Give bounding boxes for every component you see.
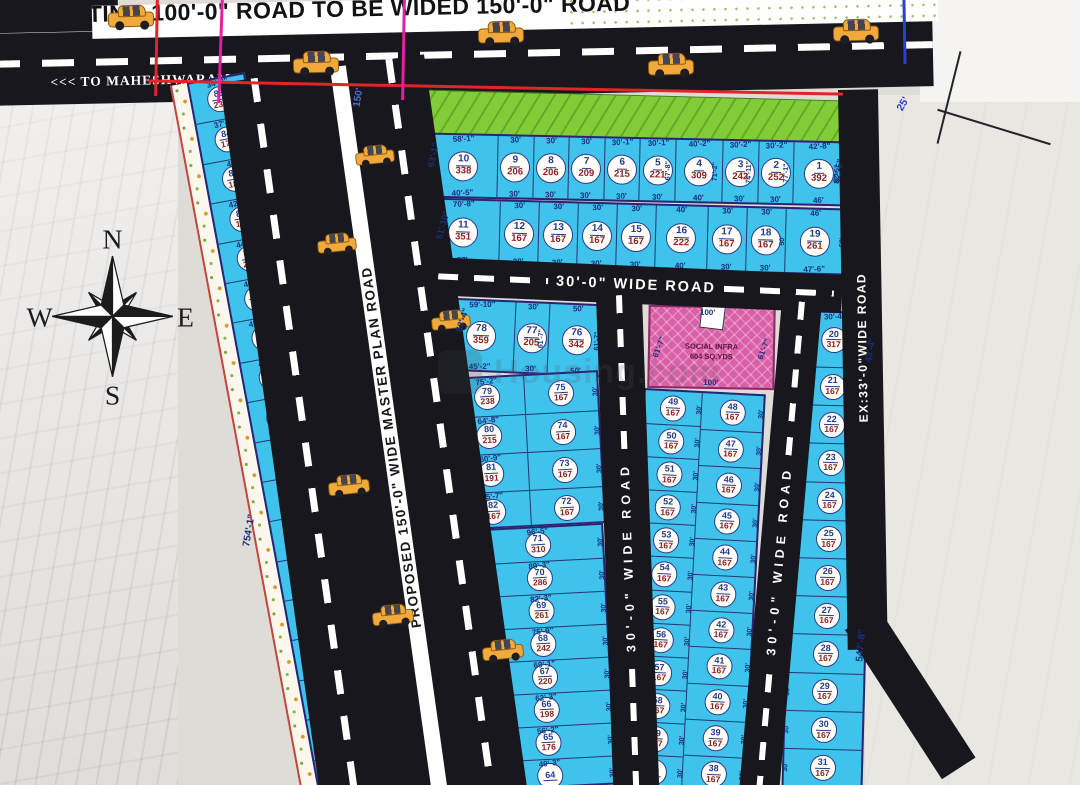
plot-badge: 21167 (819, 373, 846, 400)
plot-area: 167 (818, 654, 832, 664)
plot-area: 167 (664, 442, 679, 452)
plot-cell: 50167 30' (642, 423, 700, 459)
plot-area: 167 (554, 393, 569, 403)
plot-area: 221 (649, 170, 665, 181)
plot-badge: 23167 (817, 450, 844, 477)
cross-road-label: 30'-0" WIDE ROAD (556, 274, 716, 297)
plot-badge: 38167 (700, 761, 727, 785)
plot-badge: 19261 (799, 226, 830, 257)
plot-area: 215 (482, 435, 497, 445)
plot-side-dim: 67'-8" (665, 161, 672, 180)
plot-top-dim: 46' (810, 208, 821, 217)
plot-bottom-dim: 40'-5" (452, 188, 474, 198)
plot-cell: 38167 30' (682, 754, 745, 785)
plot-badge: 27167 (813, 602, 840, 629)
plot-badge: 11351 (448, 217, 479, 248)
plot-number: 64 (543, 770, 558, 781)
plot-area: 167 (820, 578, 834, 588)
plot-badge: 12167 (504, 218, 535, 249)
plot-area: 167 (757, 240, 773, 251)
plot-badge: 51167 (656, 461, 683, 488)
plot-area: 167 (817, 692, 831, 702)
compass-east-label: E (177, 301, 194, 332)
plot-top-dim: 30' (722, 206, 733, 215)
plot-area: 252 (768, 173, 784, 184)
plot-side-dim: 30' (696, 405, 703, 415)
plot-area: 167 (511, 234, 527, 245)
plot-side-dim: 30' (682, 669, 689, 679)
plot-badge: 40167 (704, 689, 731, 716)
plot-badge: 6215 (607, 154, 638, 185)
plot-cell: 44167 30' (693, 538, 756, 577)
plot-cell: 30'-2" 2252 30' 77'-1" (757, 142, 794, 204)
taxi-icon (108, 11, 154, 27)
plot-area: 167 (824, 425, 838, 435)
plot-row-1: 58'-1" 10338 40'-5" 30' 9206 30' 30' 820… (427, 133, 846, 207)
plot-cell: 46167 30' (697, 465, 760, 504)
plot-bottom-dim: 46' (813, 196, 824, 206)
plot-side-dim: 30' (687, 570, 694, 580)
plot-bottom-dim: 30' (651, 192, 662, 202)
plot-area: 392 (811, 173, 827, 184)
taxi-icon (833, 25, 879, 41)
plot-area: 167 (665, 408, 680, 418)
plot-badge: 52167 (654, 494, 681, 521)
plot-top-dim: 30' (510, 135, 521, 145)
plot-cell: 30' 14167 30' (576, 203, 617, 267)
plot-cell: 30' 18167 30' 50' (745, 208, 786, 272)
plot-area: 242 (536, 644, 551, 654)
plot-side-dim: 30' (690, 504, 697, 514)
plot-badge: 1392 (804, 158, 835, 189)
taxi-icon (478, 27, 524, 43)
plot-cell: 40167 30' (686, 682, 749, 721)
plot-cell: 30'-1" 5221 30' 67'-8" (639, 139, 676, 201)
plot-area: 167 (715, 594, 730, 604)
plot-side-dim: 74'-11" (746, 161, 753, 184)
plot-badge: 9206 (500, 152, 531, 183)
plot-bottom-dim: 30' (770, 195, 781, 205)
compass-north-label: N (103, 223, 123, 254)
plot-cell: 30167 30' (785, 710, 863, 750)
plot-cell: 30' 15167 30' (615, 205, 656, 269)
plot-side-dim: 30' (676, 769, 683, 779)
plot-badge: 7209 (571, 153, 602, 184)
plot-badge: 8206 (536, 152, 567, 183)
plot-cell: 47167 30' (699, 429, 762, 468)
plot-area: 167 (706, 775, 721, 785)
plot-top-dim: 30' (553, 202, 564, 211)
plot-badge: 44167 (711, 544, 738, 571)
plot-badge: 45167 (713, 508, 740, 535)
plot-side-dim: 30' (685, 603, 692, 613)
plot-cell: 43167 30' (691, 574, 754, 613)
plot-badge: 14167 (582, 220, 613, 251)
plot-top-dim: 30' (761, 207, 772, 216)
plot-area: 167 (662, 475, 677, 485)
plot-cell: 40'-2" 4309 40' 71'-2" (674, 140, 722, 202)
plot-area: 167 (721, 485, 736, 495)
plot-cell: 30' 9206 30' (496, 136, 533, 198)
plot-cell: 42167 30' (690, 610, 753, 649)
plot-area: 167 (822, 501, 836, 511)
plot-badge: 73167 (551, 456, 578, 483)
plot-area: 215 (614, 169, 630, 180)
plot-cell: 41167 30' (688, 646, 751, 685)
plot-cell: 30'-1" 6215 30' (603, 138, 640, 200)
plot-top-dim: 30' (514, 201, 525, 210)
plot-top-dim: 30' (546, 136, 557, 146)
plot-area: 359 (473, 335, 489, 347)
plot-top-dim: 42'-8" (809, 141, 831, 151)
plot-cell: 30'-2" 3242 30' 74'-11" (721, 141, 758, 203)
plot-area: 167 (821, 539, 835, 549)
plot-badge: 39167 (702, 725, 729, 752)
plot-badge: 24167 (816, 488, 843, 515)
plot-area: 167 (710, 702, 725, 712)
plot-badge: 43167 (709, 580, 736, 607)
plot-side-dim: 30' (752, 518, 759, 528)
plot-area: 338 (455, 166, 471, 177)
watermark-logo-icon (438, 350, 482, 394)
plot-side-dim: 30' (597, 536, 604, 546)
plot-side-dim: 30' (782, 763, 789, 773)
social-top-dim: 100' (700, 308, 715, 317)
plot-badge: 13167 (543, 219, 574, 250)
plot-top-dim: 40'-2" (689, 139, 711, 149)
plot-area: 167 (717, 558, 732, 568)
plot-top-dim: 58'-1" (453, 134, 475, 144)
plot-top-dim: 50' (572, 304, 583, 313)
plot-area: 167 (660, 508, 675, 518)
plot-cell: 72167 30' (530, 486, 604, 528)
compass-rose-icon: N E S W (20, 222, 205, 417)
plot-badge: 46167 (715, 472, 742, 499)
plot-side-dim: 30' (754, 482, 761, 492)
plot-side-dim: 61'-7" (538, 329, 546, 348)
plot-badge: 54167 (651, 560, 678, 587)
plot-area: 167 (589, 236, 605, 247)
plot-area: 167 (708, 738, 723, 748)
plot-area: 176 (541, 743, 556, 753)
plot-cell: 49167 30' (644, 390, 702, 426)
plot-area: 206 (543, 168, 559, 179)
plot-area: 317 (826, 340, 840, 350)
plot-area: 286 (533, 578, 548, 588)
plot-badge: 18167 (750, 225, 781, 256)
plot-cell: 31167 30' (784, 748, 862, 785)
plot-cell: 29167 30' (786, 671, 864, 711)
plot-cell: 51167 30' (641, 456, 699, 492)
plot-area: 167 (718, 239, 734, 250)
plot-side-dim: 30' (678, 736, 685, 746)
plot-cell: 30' 7209 30' (568, 138, 605, 200)
plot-side-dim: 30' (755, 446, 762, 456)
master-road-label: PROPOSED 150'-0" WIDE MASTER PLAN ROAD (330, 65, 453, 785)
plot-top-dim: 30'-1" (612, 137, 634, 147)
plot-badge: 48167 (719, 399, 746, 426)
plot-cell: 48167 30' (701, 393, 764, 432)
plot-bottom-dim: 30' (509, 189, 520, 199)
plot-area: 198 (540, 710, 555, 720)
plot-top-dim: 40' (677, 205, 688, 214)
plot-area: 167 (658, 541, 673, 551)
plot-area: 309 (691, 171, 707, 182)
plot-badge: 50167 (658, 428, 685, 455)
plot-bottom-dim: 30' (616, 191, 627, 201)
plot-badge: 47167 (717, 436, 744, 463)
road-dash (438, 273, 548, 284)
plot-top-dim: 30' (581, 137, 592, 147)
vertical-road-label: 30'-0" WIDE ROAD (617, 452, 638, 663)
plot-area: 167 (655, 607, 670, 617)
watermark-text: Housing.com (494, 353, 720, 392)
plot-badge: 72167 (553, 494, 580, 521)
plot-area: 220 (538, 677, 553, 687)
plot-side-dim: 30' (750, 554, 757, 564)
plot-bottom-dim: 30' (734, 194, 745, 204)
plot-area: 261 (535, 611, 550, 621)
plot-badge: 49167 (659, 394, 686, 421)
plot-side-dim: 30' (683, 636, 690, 646)
background-building-sketch-left (0, 58, 178, 785)
plot-area: 167 (713, 630, 728, 640)
plot-area: 167 (815, 769, 829, 779)
plot-side-dim: 30' (689, 537, 696, 547)
plot-top-dim: 30' (527, 302, 538, 311)
road-center-line (0, 41, 933, 68)
plot-cell: 30' 12167 30' (498, 201, 539, 265)
plot-top-dim: 70'-8" (453, 199, 475, 209)
plot-badge: 41167 (705, 653, 732, 680)
vertical-road-label: 30'-0" WIDE ROAD (763, 455, 795, 666)
plot-badge: 29167 (811, 679, 838, 706)
plot-badge: 53167 (652, 527, 679, 554)
plot-side-dim: 30' (694, 438, 701, 448)
plot-area: 209 (578, 169, 594, 180)
plot-area: 167 (825, 387, 839, 397)
plot-cell: 30' 13167 30' (537, 202, 578, 266)
plot-area: 167 (723, 449, 738, 459)
plot-side-dim: 71'-2" (712, 162, 719, 181)
plot-area: 222 (673, 238, 689, 249)
plot-area: 167 (657, 574, 672, 584)
plot-area: 261 (807, 241, 823, 252)
plot-bottom-dim: 30' (580, 191, 591, 201)
plot-area: 167 (653, 640, 668, 650)
plot-badge: 16222 (666, 222, 697, 253)
plot-area: 167 (819, 616, 833, 626)
plot-area: 167 (725, 413, 740, 423)
plot-badge: 25167 (815, 526, 842, 553)
plot-area: 351 (455, 232, 471, 243)
plot-badge: 26167 (814, 564, 841, 591)
compass-west-label: W (26, 301, 53, 332)
taxi-icon (648, 59, 694, 75)
taxi-icon (293, 57, 339, 73)
plot-side-dim: 77'-1" (783, 163, 790, 182)
plot-area: 206 (507, 167, 523, 178)
road-title: EXISTING 100'-0" ROAD TO BE WIDED 150'-0… (92, 0, 631, 29)
plot-side-dim: 30' (680, 703, 687, 713)
plot-badge: 10338 (448, 151, 479, 182)
plot-area: 167 (628, 237, 644, 248)
plot-badge: 17167 (711, 224, 742, 255)
plot-area: 167 (556, 432, 571, 442)
plot-top-dim: 30' (592, 203, 603, 212)
plot-cell: 73167 30' (528, 448, 602, 490)
plot-top-dim: 30'-2" (730, 140, 752, 150)
plot-side-dim: 50' (779, 236, 786, 246)
plot-area: 167 (711, 666, 726, 676)
plot-area: 310 (531, 545, 546, 555)
plot-badge: 42167 (707, 616, 734, 643)
plot-bottom-dim: 30' (545, 190, 556, 200)
plot-area: 238 (480, 397, 495, 407)
plot-side-dim: 30' (692, 471, 699, 481)
plot-area: 167 (558, 470, 573, 480)
plot-layout-map: N E S W EXISTING 100'-0" ROAD TO BE WIDE… (0, 0, 1080, 785)
compass-south-label: S (105, 379, 120, 410)
plot-bottom-dim: 40' (693, 193, 704, 203)
plot-area: 167 (823, 463, 837, 473)
plot-side-dim: 30' (757, 409, 764, 419)
plot-side-dim: 30' (748, 591, 755, 601)
plot-area: 167 (816, 730, 830, 740)
plot-area: 167 (560, 507, 575, 517)
plot-badge: 4309 (684, 155, 715, 186)
plot-area: 191 (484, 473, 499, 483)
plot-top-dim: 30'-2" (766, 140, 788, 150)
plot-cell: 45167 30' (695, 502, 758, 541)
plot-top-dim: 30'-1" (647, 138, 669, 148)
plot-badge: 22167 (818, 411, 845, 438)
plot-area: 167 (719, 522, 734, 532)
plot-cell: 74167 30' (526, 410, 600, 452)
plot-cell: 46' 19261 47'-6" 50' (784, 209, 845, 274)
plot-cell: 30' 17167 30' (706, 207, 747, 271)
plot-badge: 30167 (810, 717, 837, 744)
plot-top-dim: 59'-10" (469, 300, 495, 310)
plot-top-dim: 30' (631, 204, 642, 213)
background-top-right (920, 0, 1080, 102)
watermark: Housing.com (438, 350, 720, 394)
plot-column: 75167 30' 74167 30' 73167 30' 72167 30' (524, 372, 604, 525)
plot-badge: 74167 (549, 418, 576, 445)
plot-cell: 30' 8206 30' (532, 137, 569, 199)
plot-badge: 28167 (812, 641, 839, 668)
plot-cell: 40' 16222 40' (654, 206, 707, 270)
plot-cell: 39167 30' (684, 718, 747, 757)
road-dash (724, 286, 834, 297)
plot-badge: 15167 (621, 221, 652, 252)
plot-badge: 31167 (809, 755, 836, 782)
plot-area: 167 (550, 235, 566, 246)
